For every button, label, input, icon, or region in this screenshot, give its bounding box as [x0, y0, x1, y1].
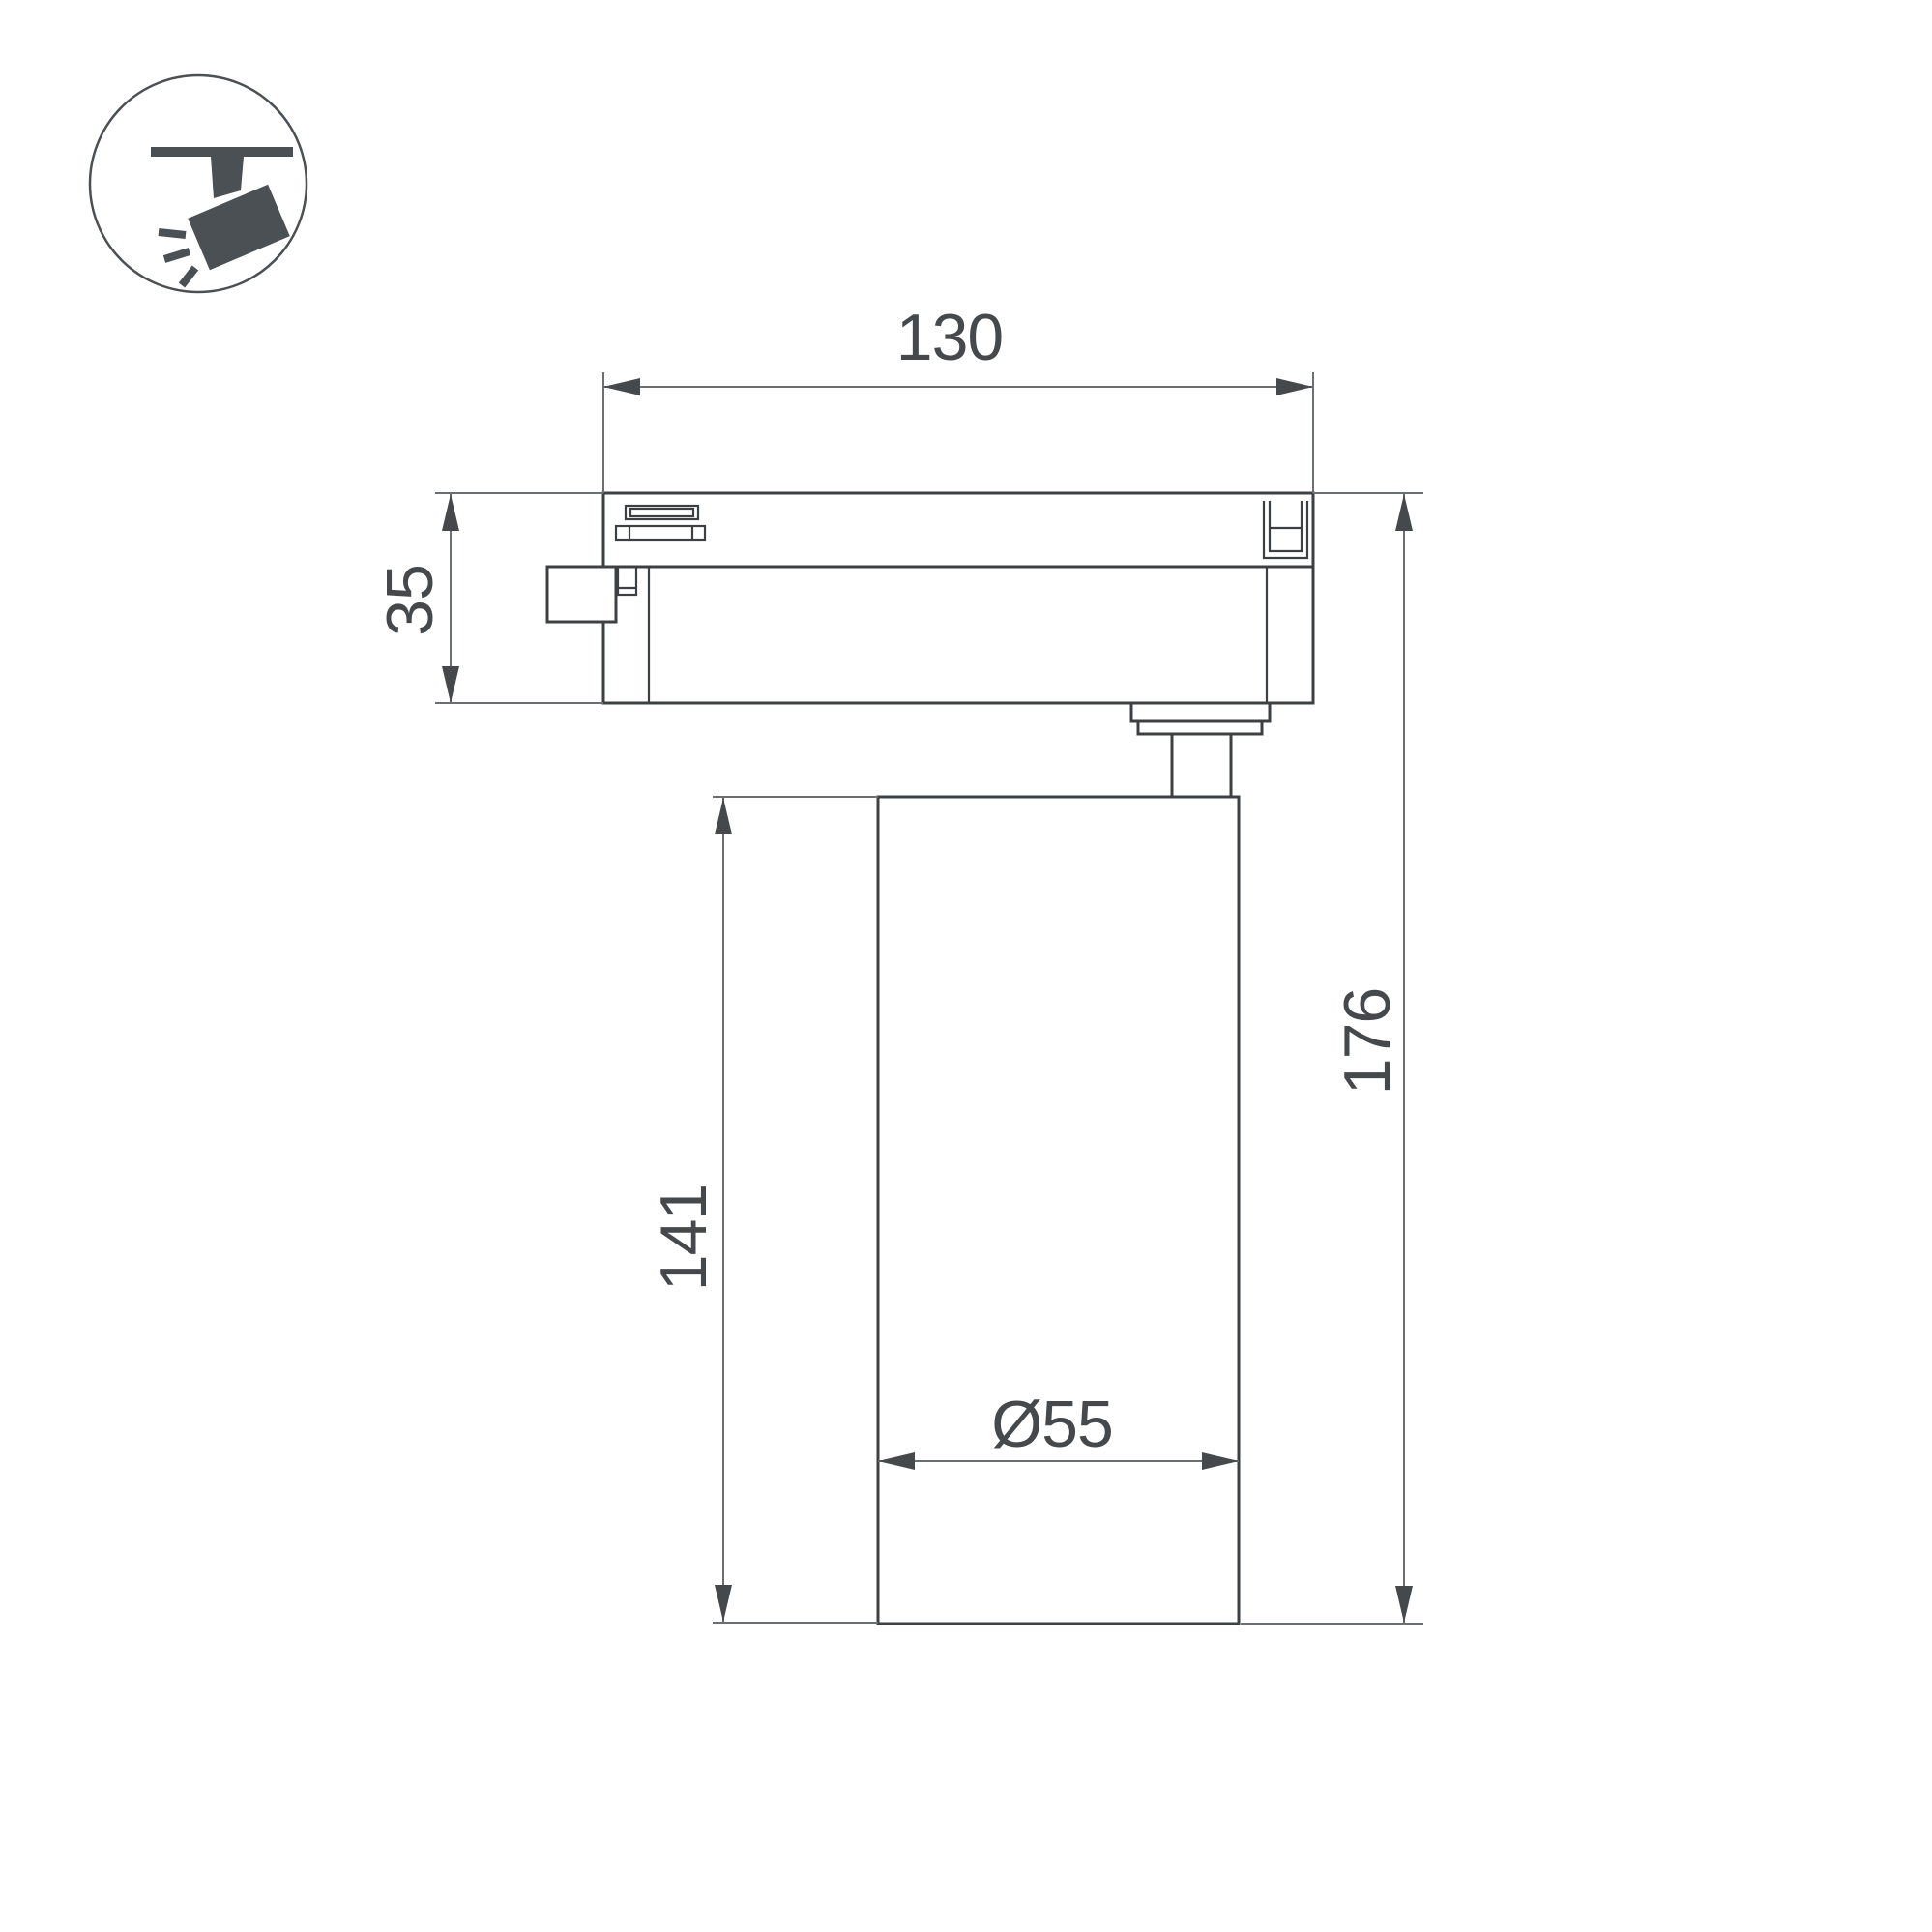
icon-lamp-head: [188, 185, 290, 271]
technical-drawing-canvas: 130 35 141 176: [0, 0, 1932, 1932]
dim-body-height-arrow-bottom: [715, 1585, 732, 1622]
dim-track-width-label: 130: [896, 301, 1003, 374]
dim-total-height-label: 176: [1331, 988, 1404, 1095]
dim-total-height-arrow-top: [1395, 494, 1413, 531]
swivel-flange-lower: [1138, 721, 1262, 734]
swivel-flange-upper: [1131, 703, 1270, 721]
dim-track-width: 130: [603, 301, 1313, 493]
dim-track-width-arrow-left: [603, 378, 640, 395]
dim-track-width-arrow-right: [1276, 378, 1313, 395]
lock-lever-latch: [618, 567, 636, 595]
dim-body-diameter-label: Ø55: [991, 1388, 1113, 1461]
icon-mount-stem: [211, 157, 244, 198]
track-adapter-body: [603, 567, 1313, 703]
dim-adapter-height-arrow-top: [442, 494, 459, 531]
contact-clip-upper-inner: [630, 509, 693, 516]
lock-lever: [547, 567, 616, 622]
dim-adapter-height-arrow-bottom: [442, 666, 459, 703]
track-light-dimension-drawing: 130 35 141 176: [0, 0, 1932, 1932]
track-adapter-top-plate: [603, 493, 1313, 567]
dim-body-height: 141: [647, 797, 878, 1623]
lamp-body-cylinder: [878, 797, 1239, 1624]
fixture-outline: [547, 493, 1313, 1624]
dim-adapter-height-label: 35: [373, 565, 447, 636]
icon-circle-border: [90, 75, 307, 292]
latch-clip-inner: [1270, 501, 1302, 551]
swivel-stem: [1172, 734, 1231, 797]
dim-body-height-arrow-top: [715, 798, 732, 834]
dim-total-height: 176: [1241, 493, 1423, 1624]
icon-light-rays: [159, 232, 195, 285]
dim-total-height-arrow-bottom: [1395, 1586, 1413, 1623]
dim-body-height-label: 141: [647, 1185, 720, 1291]
track-spotlight-icon: [90, 75, 307, 292]
icon-track-bar: [151, 147, 293, 157]
